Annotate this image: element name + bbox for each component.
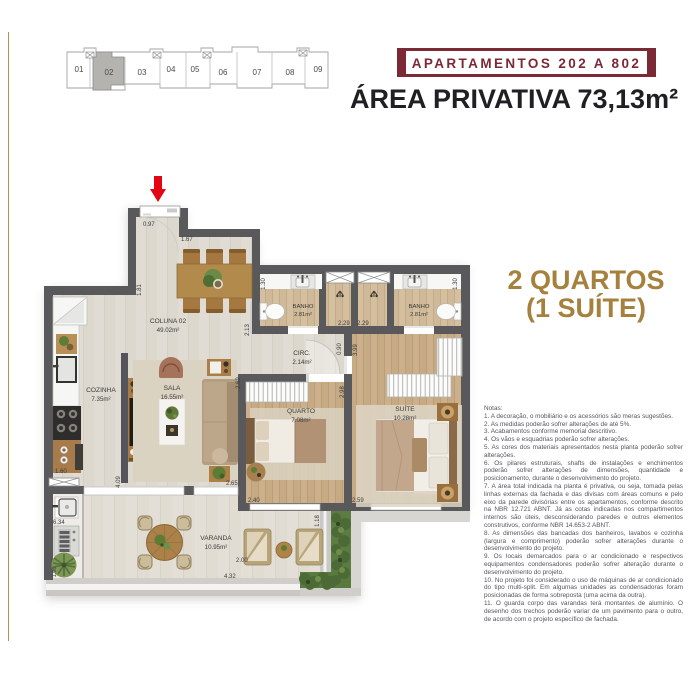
svg-text:2.29: 2.29: [338, 321, 350, 327]
svg-text:COZINHA: COZINHA: [86, 387, 116, 394]
svg-text:0.97: 0.97: [143, 222, 155, 228]
svg-text:10.28m²: 10.28m²: [394, 415, 417, 422]
svg-text:1.18: 1.18: [315, 515, 321, 527]
svg-text:2.98: 2.98: [340, 386, 346, 398]
svg-text:1.30: 1.30: [453, 278, 459, 290]
svg-text:COLUNA 02: COLUNA 02: [150, 318, 187, 325]
svg-text:49.02m²: 49.02m²: [157, 327, 180, 334]
svg-text:BANHO: BANHO: [409, 304, 430, 310]
svg-text:2.13: 2.13: [245, 324, 251, 336]
svg-text:4.09: 4.09: [116, 476, 122, 488]
svg-text:16.55m²: 16.55m²: [161, 394, 184, 401]
svg-text:07: 07: [253, 68, 262, 77]
svg-text:1.67: 1.67: [181, 237, 193, 243]
svg-text:2.14m²: 2.14m²: [292, 359, 311, 366]
svg-text:09: 09: [314, 65, 323, 74]
svg-text:2.40: 2.40: [248, 498, 260, 504]
svg-text:7.35m²: 7.35m²: [91, 396, 110, 403]
svg-text:2.59: 2.59: [352, 498, 364, 504]
svg-text:2.81m²: 2.81m²: [410, 312, 428, 318]
svg-text:3.99: 3.99: [353, 344, 359, 356]
svg-text:2.65: 2.65: [226, 481, 238, 487]
svg-text:1.81: 1.81: [137, 284, 143, 296]
svg-text:2.29: 2.29: [357, 321, 369, 327]
svg-text:05: 05: [191, 65, 200, 74]
svg-text:BANHO: BANHO: [293, 304, 314, 310]
svg-text:4.32: 4.32: [224, 574, 236, 580]
svg-text:1.30: 1.30: [261, 278, 267, 290]
svg-text:06: 06: [219, 68, 228, 77]
svg-text:08: 08: [286, 68, 295, 77]
svg-text:QUARTO: QUARTO: [287, 408, 315, 415]
svg-text:CIRC.: CIRC.: [293, 350, 311, 357]
svg-text:0.90: 0.90: [337, 343, 343, 355]
svg-text:01: 01: [75, 65, 84, 74]
svg-text:04: 04: [167, 65, 176, 74]
svg-text:1.96: 1.96: [52, 567, 58, 578]
svg-text:2.00: 2.00: [236, 558, 248, 564]
svg-text:02: 02: [105, 68, 114, 77]
svg-text:1.60: 1.60: [55, 469, 67, 475]
svg-text:2.81m²: 2.81m²: [294, 312, 312, 318]
svg-text:SUÍTE: SUÍTE: [395, 404, 415, 413]
svg-text:SALA: SALA: [164, 385, 181, 392]
svg-text:10.95m²: 10.95m²: [205, 544, 228, 551]
svg-text:03: 03: [138, 68, 147, 77]
svg-text:7.08m²: 7.08m²: [291, 417, 310, 424]
svg-text:2.69: 2.69: [236, 377, 242, 389]
svg-text:6.34: 6.34: [53, 520, 65, 526]
svg-text:VARANDA: VARANDA: [200, 535, 232, 542]
